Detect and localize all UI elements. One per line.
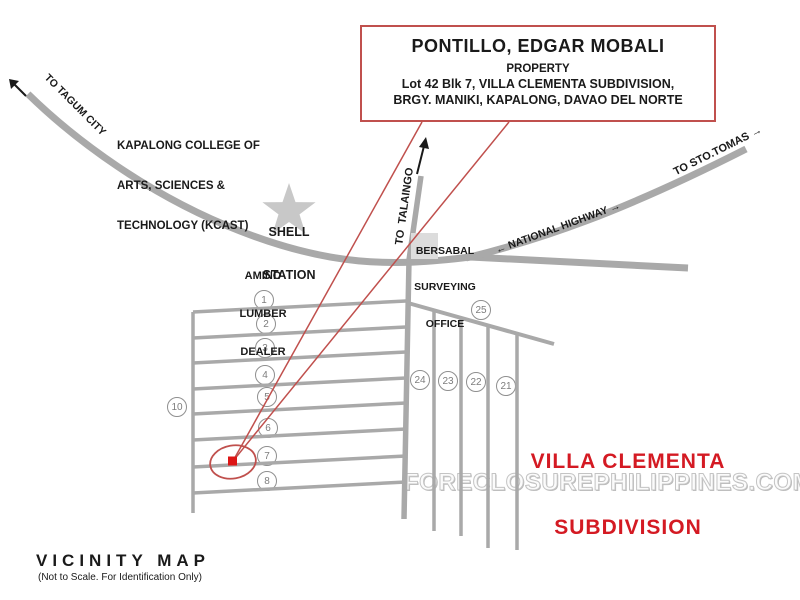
- block-circle-7: 7: [257, 446, 277, 466]
- to-tagum-arrow-icon: [9, 79, 26, 96]
- subdivision-name: VILLA CLEMENTA SUBDIVISION: [528, 407, 728, 583]
- block-circle-21: 21: [496, 376, 516, 396]
- national-highway-label: ← NATIONAL HIGHWAY →: [481, 195, 635, 261]
- block-circle-8: 8: [257, 471, 277, 491]
- map-title: VICINITY MAP: [36, 551, 210, 571]
- block-circle-24: 24: [410, 370, 430, 390]
- property-owner: PONTILLO, EDGAR MOBALI: [362, 36, 714, 57]
- lot-marker: [228, 457, 237, 466]
- property-address-line1: Lot 42 Blk 7, VILLA CLEMENTA SUBDIVISION…: [362, 77, 714, 91]
- property-subtitle: PROPERTY: [362, 63, 714, 75]
- kcast-label: KAPALONG COLLEGE OF ARTS, SCIENCES & TEC…: [117, 114, 260, 259]
- block-circle-10: 10: [167, 397, 187, 417]
- property-title-box: PONTILLO, EDGAR MOBALI PROPERTY Lot 42 B…: [360, 25, 716, 122]
- map-note: (Not to Scale. For Identification Only): [38, 572, 202, 584]
- block-circle-23: 23: [438, 371, 458, 391]
- to-tagum-city-label: TO TAGUM CITY: [39, 69, 111, 141]
- block-circle-6: 6: [258, 418, 278, 438]
- block-circle-5: 5: [257, 387, 277, 407]
- vicinity-map: FORECLOSUREPHILIPPINES.COM 1 2 3 4 5 6 7…: [0, 0, 800, 600]
- amino-lumber-label: AMINO LUMBER DEALER: [223, 245, 303, 384]
- to-sto-tomas-label: TO STO.TOMAS →: [666, 121, 770, 181]
- to-talaingo-arrow-icon: [417, 137, 429, 174]
- lot-highlight-ellipse: [207, 442, 258, 482]
- property-address-line2: BRGY. MANIKI, KAPALONG, DAVAO DEL NORTE: [362, 93, 714, 107]
- block-circle-22: 22: [466, 372, 486, 392]
- bersabal-label: BERSABAL SURVEYING OFFICE: [405, 221, 485, 354]
